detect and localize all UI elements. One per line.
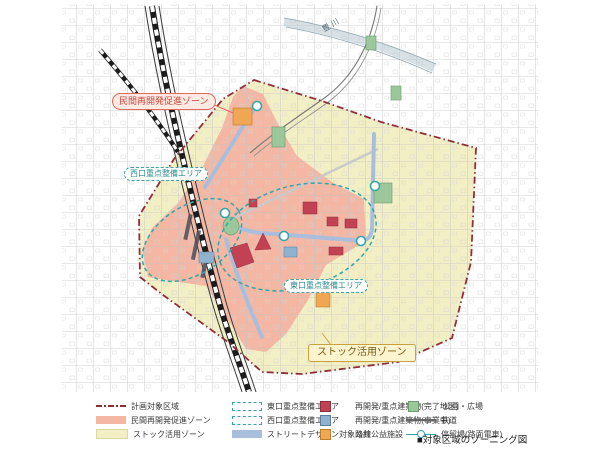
street-grid	[62, 4, 538, 392]
callout-private-redevelopment-zone: 民間再開発促進ゾーン	[112, 93, 216, 110]
callout-east-exit-area: 東口重点整備エリア	[284, 279, 368, 293]
callout-stock-use-zone: ストック活用ゾーン	[308, 344, 416, 362]
zoning-figure: 豊川 民間再開発促進ゾーン 西口重点整備エリア 東口重点整備エリア ストック活用…	[0, 0, 600, 450]
zoning-map: 豊川	[0, 0, 600, 450]
callout-west-exit-area: 西口重点整備エリア	[124, 167, 208, 181]
figure-caption: ■対象区域のゾーニング図	[417, 432, 527, 446]
